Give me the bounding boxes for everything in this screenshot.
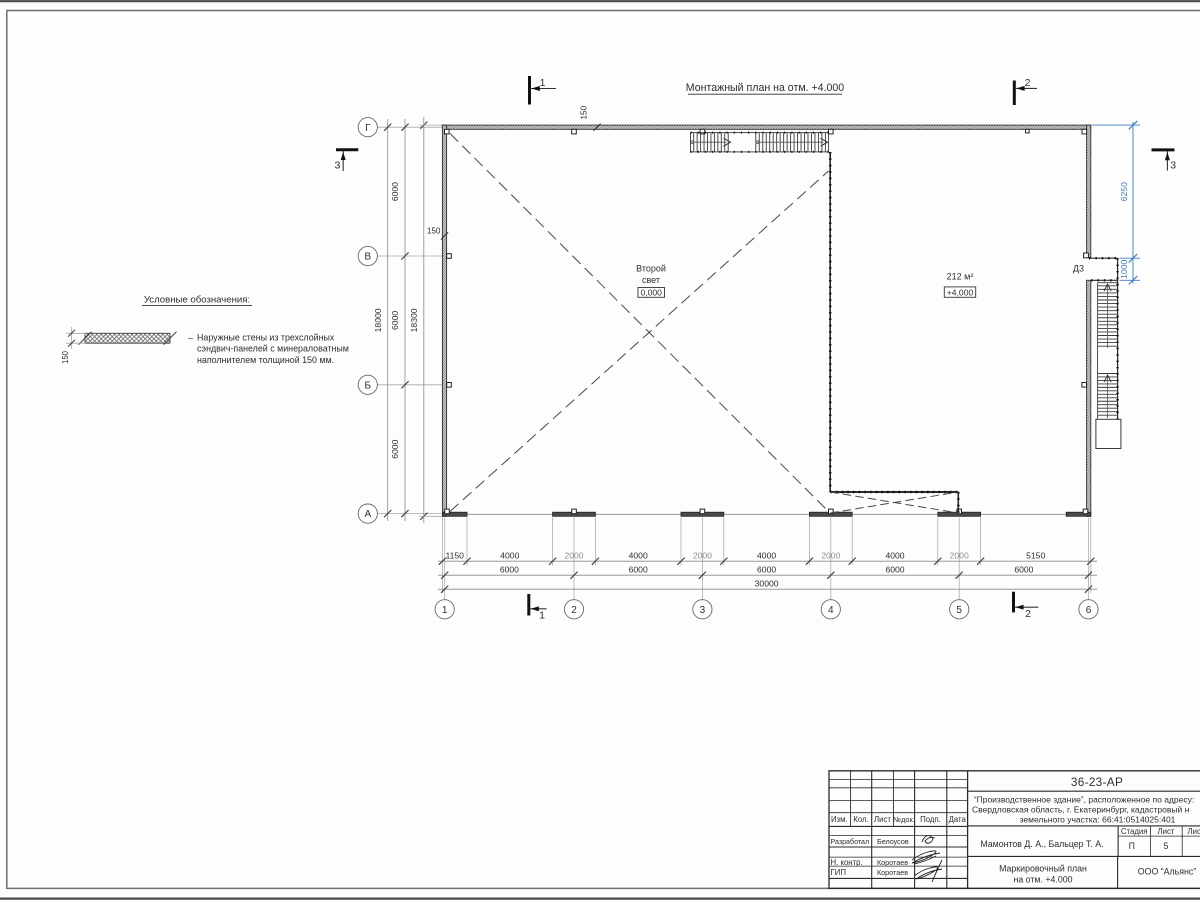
svg-text:Г: Г (365, 123, 371, 134)
svg-text:36-23-АР: 36-23-АР (1071, 775, 1123, 789)
svg-text:150: 150 (427, 227, 441, 236)
svg-text:Свердловская область, г. Екате: Свердловская область, г. Екатеринбург, к… (972, 804, 1190, 814)
svg-text:Изм.: Изм. (831, 815, 848, 824)
svg-text:ООО “Альянс”: ООО “Альянс” (1138, 867, 1197, 877)
svg-text:2000: 2000 (564, 550, 583, 560)
svg-text:6000: 6000 (885, 564, 904, 574)
svg-text:Разработал: Разработал (831, 838, 870, 846)
svg-text:5: 5 (956, 605, 962, 616)
svg-text:5150: 5150 (1026, 550, 1045, 560)
svg-text:150: 150 (61, 350, 70, 364)
svg-text:Условные обозначения:: Условные обозначения: (144, 294, 250, 305)
svg-text:4: 4 (828, 605, 834, 616)
svg-text:6000: 6000 (390, 311, 400, 330)
svg-text:6000: 6000 (1014, 564, 1033, 574)
svg-text:Н. контр.: Н. контр. (831, 858, 863, 867)
svg-text:А: А (364, 509, 371, 520)
svg-text:6000: 6000 (500, 564, 519, 574)
svg-text:Второй: Второй (636, 264, 666, 274)
svg-text:6: 6 (1086, 605, 1092, 616)
svg-text:П: П (1129, 841, 1135, 851)
svg-text:2: 2 (571, 605, 577, 616)
svg-text:3: 3 (334, 160, 340, 172)
svg-text:Мамонтов Д. А., Бальцер Т. А.: Мамонтов Д. А., Бальцер Т. А. (980, 839, 1103, 849)
svg-text:1: 1 (540, 77, 546, 89)
svg-text:Б: Б (365, 380, 372, 391)
svg-text:свет: свет (642, 275, 660, 285)
svg-text:ГИП: ГИП (831, 868, 846, 877)
svg-text:30000: 30000 (755, 578, 779, 588)
svg-text:земельного участка: 66:41:0514: земельного участка: 66:41:0514025:401 (1020, 814, 1176, 824)
svg-text:“Производственное здание”, рас: “Производственное здание”, расположенное… (974, 795, 1194, 805)
svg-text:3: 3 (700, 605, 706, 616)
svg-text:5: 5 (1163, 841, 1168, 851)
svg-text:Лист: Лист (874, 815, 891, 824)
svg-text:4000: 4000 (629, 550, 648, 560)
svg-text:2: 2 (1025, 608, 1031, 620)
svg-text:Стадия: Стадия (1121, 827, 1148, 836)
svg-text:Наружные стены из трехслойных: Наружные стены из трехслойных (197, 333, 335, 343)
svg-text:6250: 6250 (1119, 182, 1129, 201)
svg-text:Маркировочный план: Маркировочный план (999, 863, 1087, 873)
svg-text:Д3: Д3 (1073, 264, 1084, 274)
svg-text:3: 3 (1170, 160, 1176, 172)
svg-text:№док.: №док. (893, 815, 915, 824)
svg-text:18300: 18300 (409, 308, 419, 332)
svg-text:150: 150 (579, 105, 588, 119)
svg-text:Подп.: Подп. (920, 815, 941, 824)
svg-text:Дата: Дата (949, 815, 967, 824)
svg-text:В: В (364, 252, 371, 263)
svg-text:2: 2 (1025, 77, 1031, 89)
svg-text:212 м²: 212 м² (947, 272, 974, 282)
svg-text:наполнителем толщиной 150 мм.: наполнителем толщиной 150 мм. (197, 355, 334, 365)
svg-text:на отм. +4.000: на отм. +4.000 (1013, 874, 1072, 884)
svg-text:1000: 1000 (1119, 260, 1129, 279)
svg-text:1: 1 (442, 605, 448, 616)
svg-text:4000: 4000 (885, 550, 904, 560)
svg-text:4000: 4000 (500, 550, 519, 560)
svg-text:Коротаев: Коротаев (877, 858, 908, 867)
svg-text:6000: 6000 (390, 182, 400, 201)
svg-text:4000: 4000 (757, 550, 776, 560)
svg-text:Монтажный план на отм. +4.000: Монтажный план на отм. +4.000 (686, 82, 844, 94)
svg-text:18000: 18000 (373, 308, 383, 332)
svg-text:–: – (188, 333, 193, 343)
svg-text:сэндвич-панелей с минераловатн: сэндвич-панелей с минераловатным (197, 344, 349, 354)
svg-text:2000: 2000 (693, 550, 712, 560)
svg-text:6000: 6000 (629, 564, 648, 574)
svg-text:6000: 6000 (757, 564, 776, 574)
svg-text:2000: 2000 (950, 550, 969, 560)
svg-text:Листов: Листов (1188, 827, 1200, 836)
svg-text:Кол.: Кол. (853, 815, 868, 824)
svg-text:Лист: Лист (1158, 827, 1175, 836)
svg-text:0,000: 0,000 (640, 287, 662, 297)
svg-text:1150: 1150 (445, 550, 464, 560)
svg-text:Коротаев: Коротаев (877, 868, 908, 877)
svg-text:+4,000: +4,000 (947, 287, 974, 297)
svg-text:6000: 6000 (390, 439, 400, 458)
svg-text:2000: 2000 (821, 550, 840, 560)
svg-text:1: 1 (539, 609, 545, 621)
svg-text:Белоусов: Белоусов (877, 837, 909, 846)
